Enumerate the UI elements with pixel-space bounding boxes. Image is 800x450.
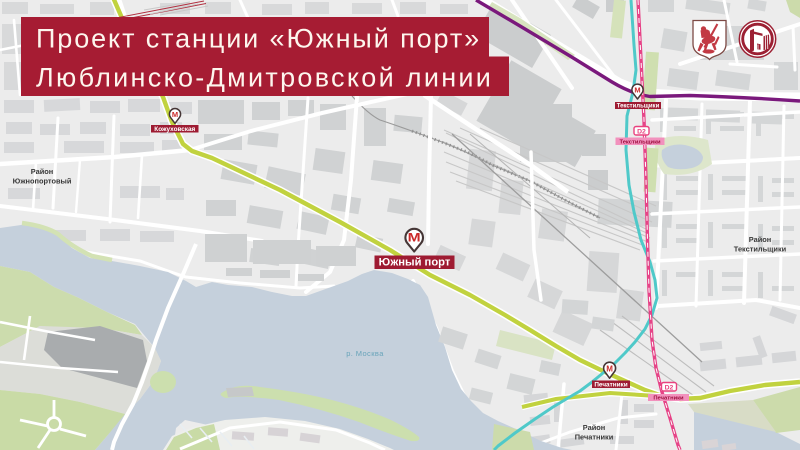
svg-text:Район: Район <box>749 235 771 244</box>
svg-text:Южнопортовый: Южнопортовый <box>13 177 72 186</box>
svg-text:Район: Район <box>583 423 605 432</box>
svg-text:Кожуховская: Кожуховская <box>154 126 195 133</box>
svg-text:Проект станции «Южный порт»: Проект станции «Южный порт» <box>36 24 481 54</box>
svg-text:Печатники: Печатники <box>594 381 627 388</box>
svg-text:Текстильщики: Текстильщики <box>617 103 660 109</box>
svg-text:D2: D2 <box>665 384 674 391</box>
svg-text:М: М <box>634 86 640 95</box>
svg-text:Текстильщики: Текстильщики <box>734 245 787 254</box>
svg-text:Люблинско-Дмитровской линии: Люблинско-Дмитровской линии <box>36 63 493 93</box>
svg-text:М: М <box>172 110 178 119</box>
svg-text:Текстильщики: Текстильщики <box>619 139 661 145</box>
svg-text:М: М <box>408 233 421 245</box>
svg-text:Печатники: Печатники <box>575 433 614 442</box>
svg-text:D2: D2 <box>637 128 646 135</box>
svg-text:Печатники: Печатники <box>653 396 684 402</box>
svg-text:Район: Район <box>31 167 53 176</box>
svg-text:р. Москва: р. Москва <box>346 349 384 358</box>
svg-text:Южный порт: Южный порт <box>379 257 451 269</box>
svg-text:М: М <box>606 364 613 373</box>
